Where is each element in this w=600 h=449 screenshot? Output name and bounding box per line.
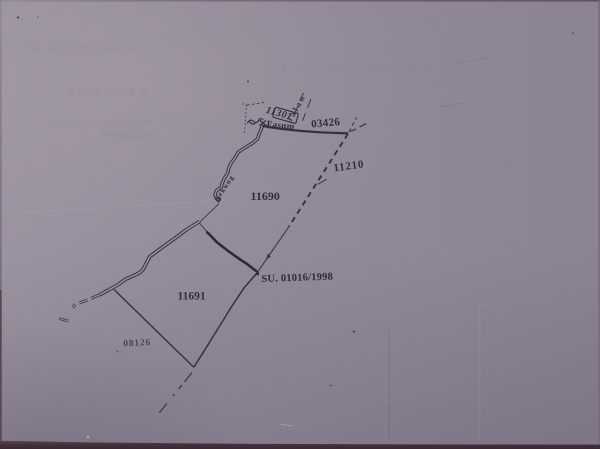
svg-text:ke an pun: ke an pun — [380, 374, 418, 384]
svg-text:IGK KECEMIGAN 20: IGK KECEMIGAN 20 — [22, 43, 136, 54]
svg-text:Jalan: Jalan — [284, 92, 308, 124]
svg-text:TIOS No. 8-9: TIOS No. 8-9 — [68, 85, 148, 99]
svg-text:08126: 08126 — [123, 338, 151, 349]
svg-text:11690: 11690 — [251, 189, 280, 203]
svg-text:lan ti: lan ti — [492, 155, 512, 165]
svg-text:Kalagsan n Rat: Kalagsan n Rat — [100, 130, 153, 139]
svg-text:saW Wint Street, Pengembangan: saW Wint Street, Pengembangan Dal — [283, 62, 426, 72]
svg-text:11210: 11210 — [333, 158, 365, 174]
svg-text:11691: 11691 — [178, 291, 206, 303]
svg-text:urat swapit, Pengantingan S: urat swapit, Pengantingan S — [52, 118, 149, 127]
svg-text:SU. 01016/1998: SU. 01016/1998 — [261, 272, 333, 285]
svg-text:Wa23011: Wa23011 — [430, 18, 466, 28]
svg-text:03426: 03426 — [311, 116, 341, 130]
svg-text:na d: na d — [500, 240, 517, 250]
svg-text:Kadar Pengarahan: Kadar Pengarahan — [398, 78, 472, 88]
